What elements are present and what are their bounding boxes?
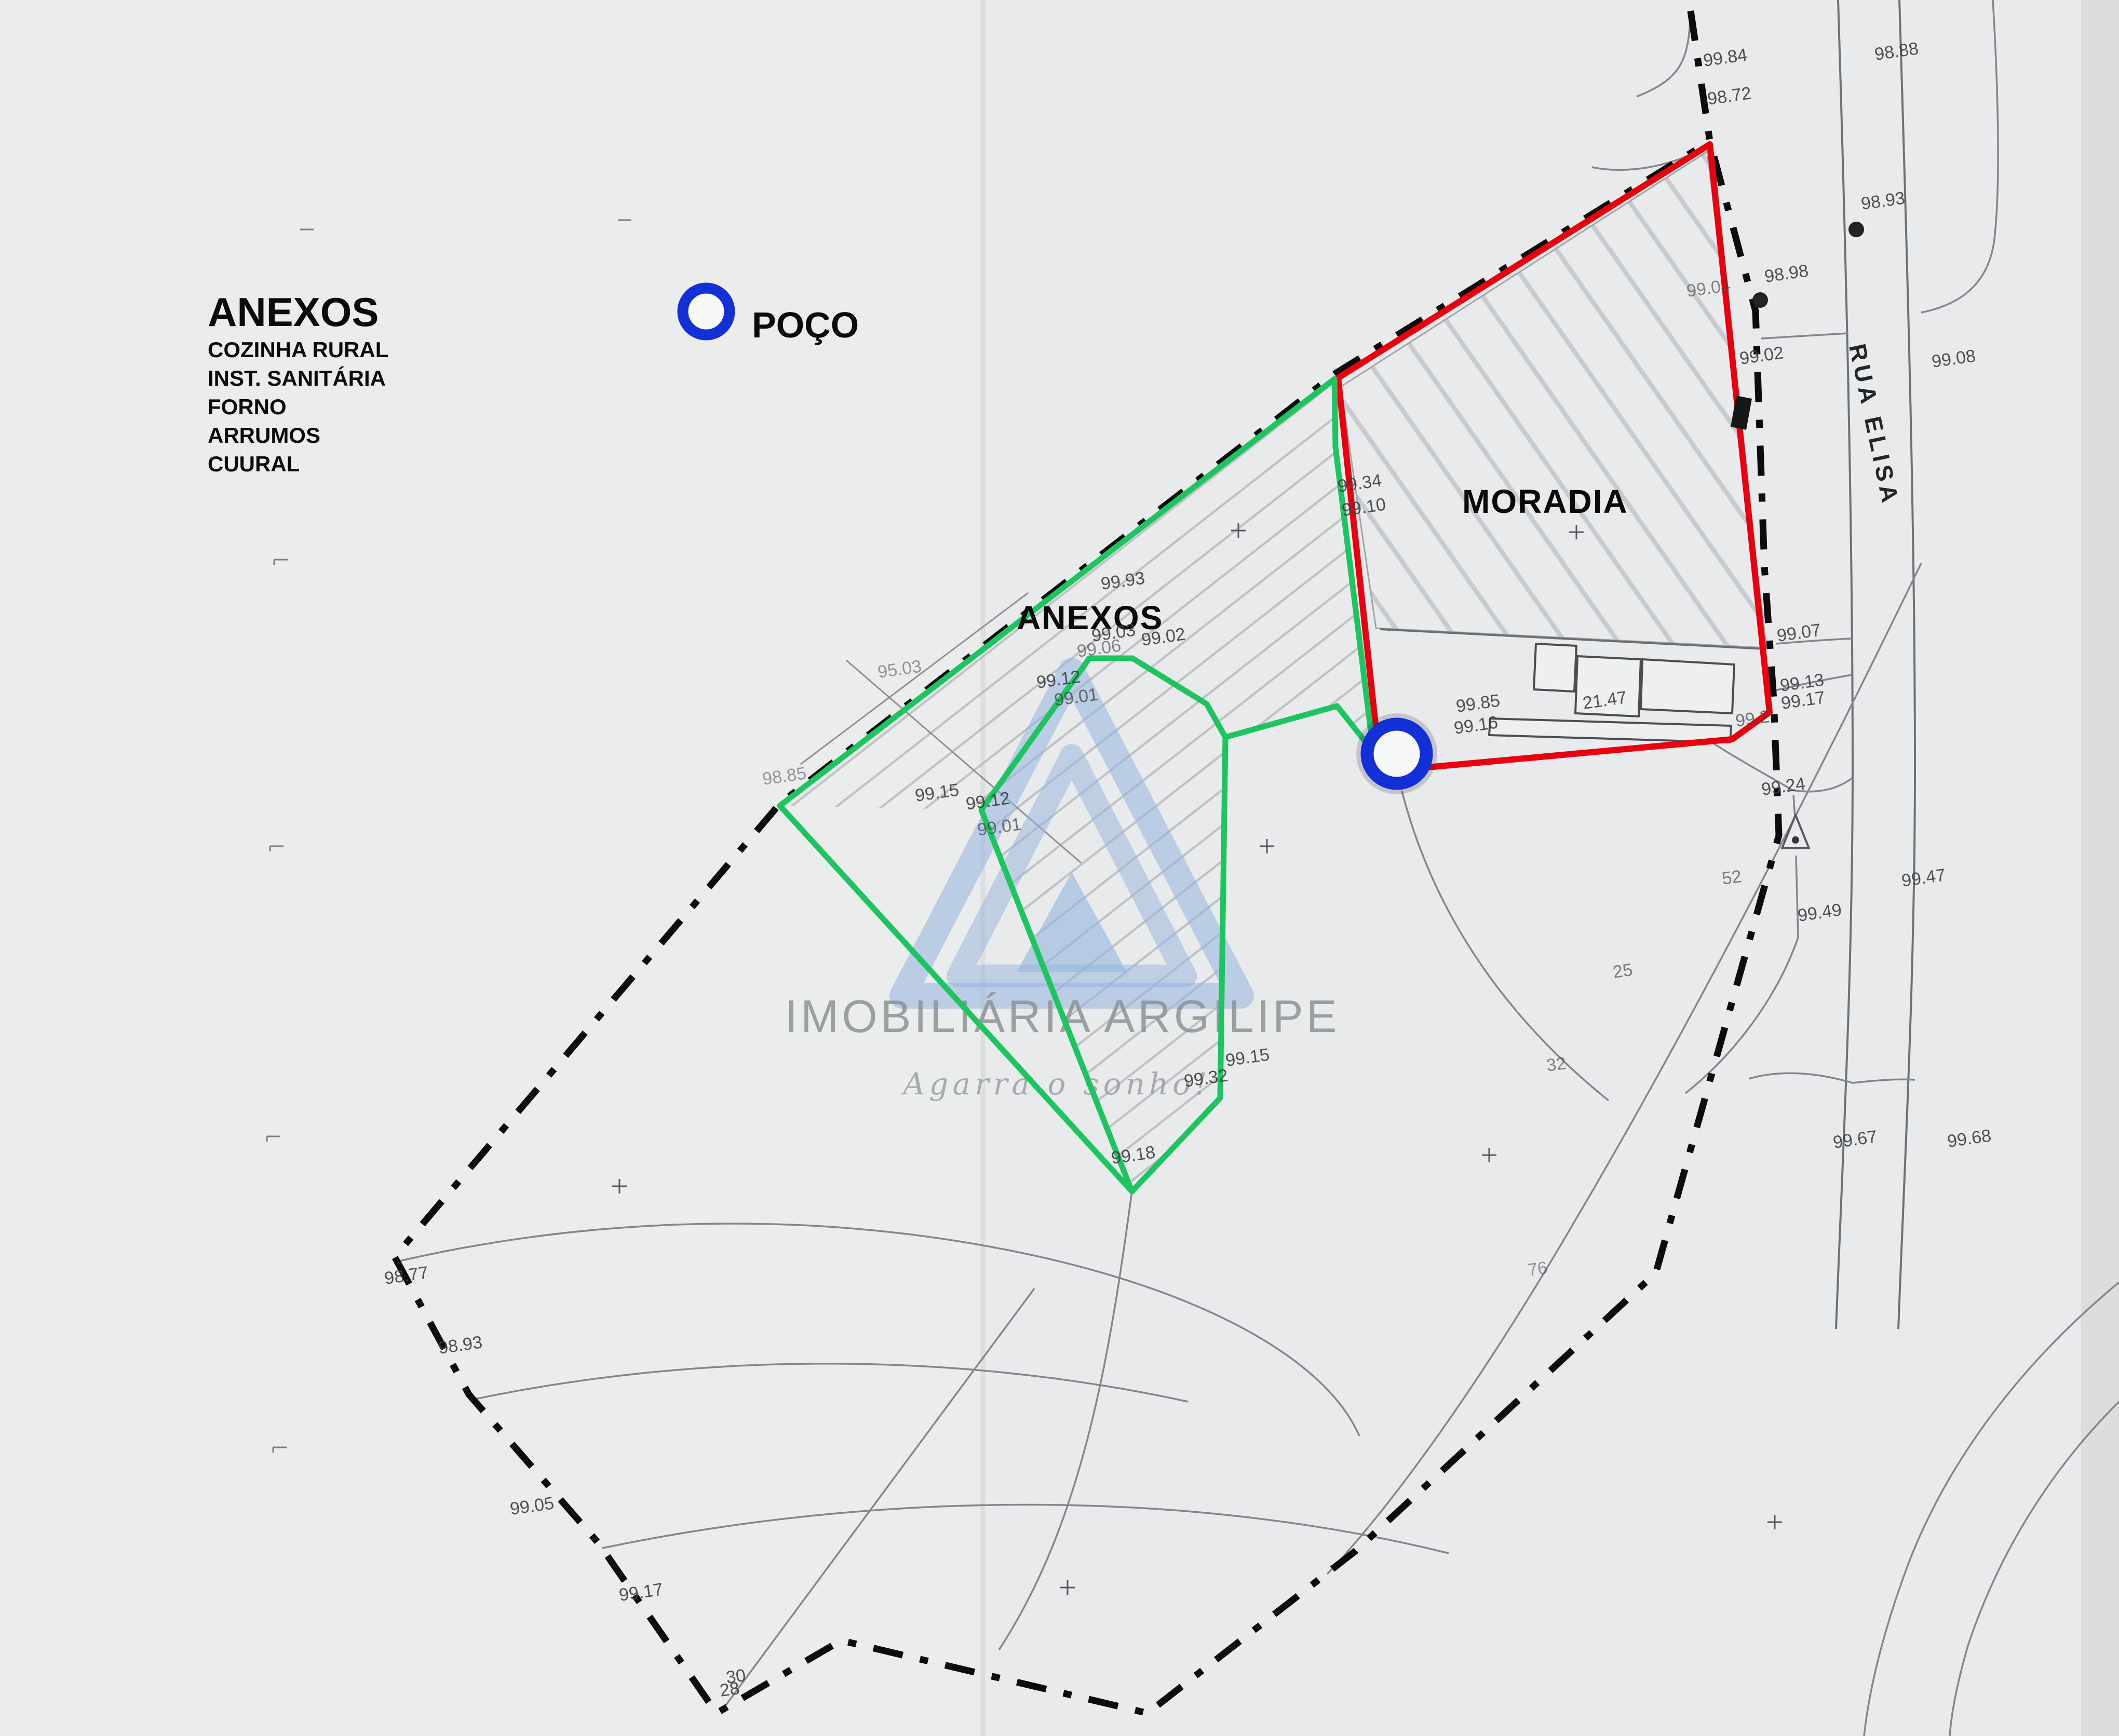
- survey-scan-page: IMOBILIÁRIA ARGILIPEAgarra o sonho!POÇOA…: [0, 0, 2119, 1736]
- survey-map: IMOBILIÁRIA ARGILIPEAgarra o sonho!POÇOA…: [0, 0, 2119, 1736]
- elevation-label: 25: [1612, 960, 1634, 982]
- watermark-slogan: Agarra o sonho!: [900, 1066, 1211, 1102]
- legend-item: CUURAL: [208, 452, 300, 476]
- paper-right-edge: [2081, 0, 2119, 1736]
- elevation-label: 32: [1545, 1053, 1568, 1076]
- legend-item: COZINHA RURAL: [208, 337, 388, 362]
- area-label-moradia: MORADIA: [1462, 483, 1628, 520]
- survey-point-dot: [1752, 292, 1768, 308]
- survey-triangle-dot: [1792, 836, 1799, 844]
- legend-item: INST. SANITÁRIA: [208, 366, 386, 390]
- elevation-label: 52: [1721, 866, 1743, 889]
- legend-title: ANEXOS: [208, 289, 379, 335]
- elevation-label: 28: [719, 1678, 741, 1701]
- elevation-label: 76: [1527, 1258, 1549, 1280]
- building: [1641, 659, 1734, 713]
- well-circle-map: [1367, 724, 1426, 783]
- well-circle-legend: [683, 288, 730, 335]
- legend-item: FORNO: [208, 395, 287, 419]
- well-label-poco: POÇO: [752, 305, 859, 345]
- building: [1534, 644, 1576, 691]
- legend-item: ARRUMOS: [208, 423, 320, 447]
- survey-point-dot: [1848, 222, 1864, 237]
